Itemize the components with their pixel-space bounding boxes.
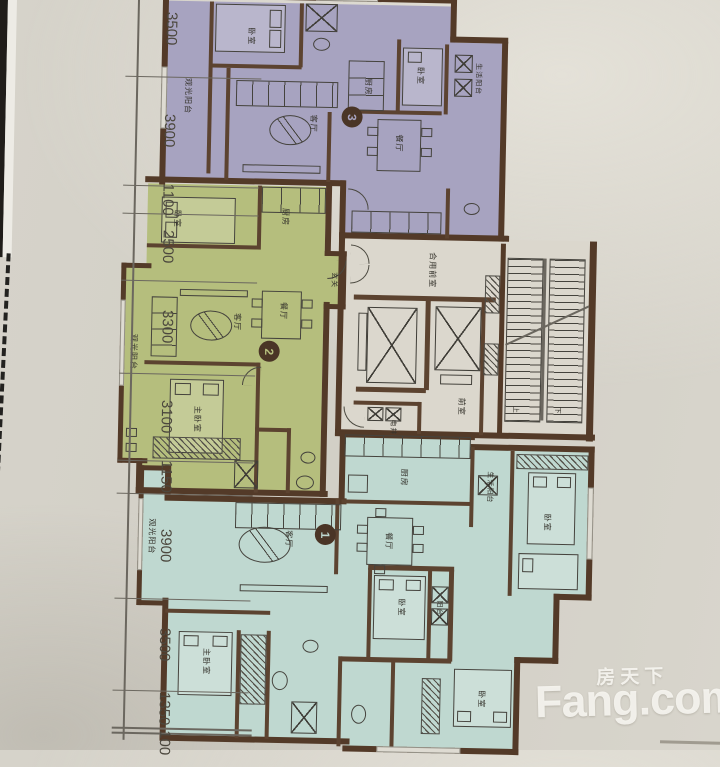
unit-1-number: 1 <box>318 531 332 538</box>
chair-icon <box>421 128 432 137</box>
interior-wall <box>417 402 422 434</box>
kitchen-counter <box>351 210 441 234</box>
elevator-door <box>357 313 367 371</box>
pillow <box>408 52 422 63</box>
wall <box>121 263 151 269</box>
wall <box>514 657 558 664</box>
pillow <box>175 383 191 395</box>
wall <box>552 594 559 664</box>
shower-icon <box>305 3 338 32</box>
flue-shaft <box>234 460 259 488</box>
washer-icon <box>454 79 472 97</box>
window <box>316 0 378 2</box>
chair-icon <box>301 319 312 328</box>
balcony-chair-icon <box>126 428 137 437</box>
chair-icon <box>251 318 262 327</box>
elevator-icon <box>434 306 481 371</box>
pillow <box>457 711 471 722</box>
tv-cabinet <box>180 289 248 297</box>
pillow <box>406 580 421 591</box>
wall <box>450 37 508 44</box>
fridge-icon <box>348 474 368 492</box>
stair-flight <box>504 258 543 423</box>
dashed-boundary-line <box>0 253 11 747</box>
bed-icon <box>518 553 579 590</box>
pillow <box>557 477 571 488</box>
chair-icon <box>302 299 313 308</box>
wardrobe-icon <box>239 634 266 705</box>
pillow <box>269 30 281 48</box>
pillow <box>269 10 281 28</box>
wall <box>512 657 520 755</box>
interior-wall <box>255 428 291 433</box>
kitchen-counter <box>344 434 470 459</box>
chair-icon <box>367 127 378 136</box>
washer-icon <box>455 55 473 73</box>
unit-3-number: 3 <box>345 113 359 120</box>
window <box>586 487 594 559</box>
pillow <box>183 635 198 646</box>
flue-shaft <box>291 701 318 734</box>
bed-icon <box>527 472 576 545</box>
chair-icon <box>421 148 432 157</box>
pillow <box>379 579 394 590</box>
tv-cabinet <box>242 164 320 174</box>
pillow <box>203 383 219 395</box>
watermark-brand: Fang.com <box>534 671 720 728</box>
toilet-icon <box>464 203 480 215</box>
wall <box>450 0 457 41</box>
pillow <box>522 558 533 572</box>
elevator-icon <box>366 307 418 384</box>
pillow <box>493 712 507 723</box>
wardrobe-icon <box>152 436 240 460</box>
wardrobe-icon <box>516 454 588 471</box>
elevator-door <box>440 374 472 385</box>
chair-icon <box>367 147 378 156</box>
vent-shaft <box>485 275 501 313</box>
wardrobe-icon <box>421 678 441 734</box>
chair-icon <box>252 298 263 307</box>
wall <box>136 600 166 606</box>
pillow <box>212 636 227 647</box>
water-meter <box>367 407 383 421</box>
balcony-chair-icon <box>126 443 137 452</box>
chair-icon <box>356 543 367 552</box>
chair-icon <box>374 565 385 574</box>
chair-icon <box>357 525 368 534</box>
floorplan-photo: 3 2 1 观光阳台 卧室 客厅 厨房 卧室 生活阳台 餐厅 卧室 厨房 客厅 … <box>0 0 720 762</box>
stair-flight <box>546 259 585 424</box>
sink-icon <box>300 451 315 463</box>
chair-icon <box>375 508 386 517</box>
watermark: 房天下 Fang.com <box>534 660 720 745</box>
chair-icon <box>412 544 423 553</box>
vent-shaft <box>483 343 499 375</box>
kitchen-counter <box>262 187 327 214</box>
pillow <box>533 476 547 487</box>
unit-2-number: 2 <box>262 348 276 355</box>
sofa-icon <box>236 80 339 108</box>
chair-icon <box>413 526 424 535</box>
